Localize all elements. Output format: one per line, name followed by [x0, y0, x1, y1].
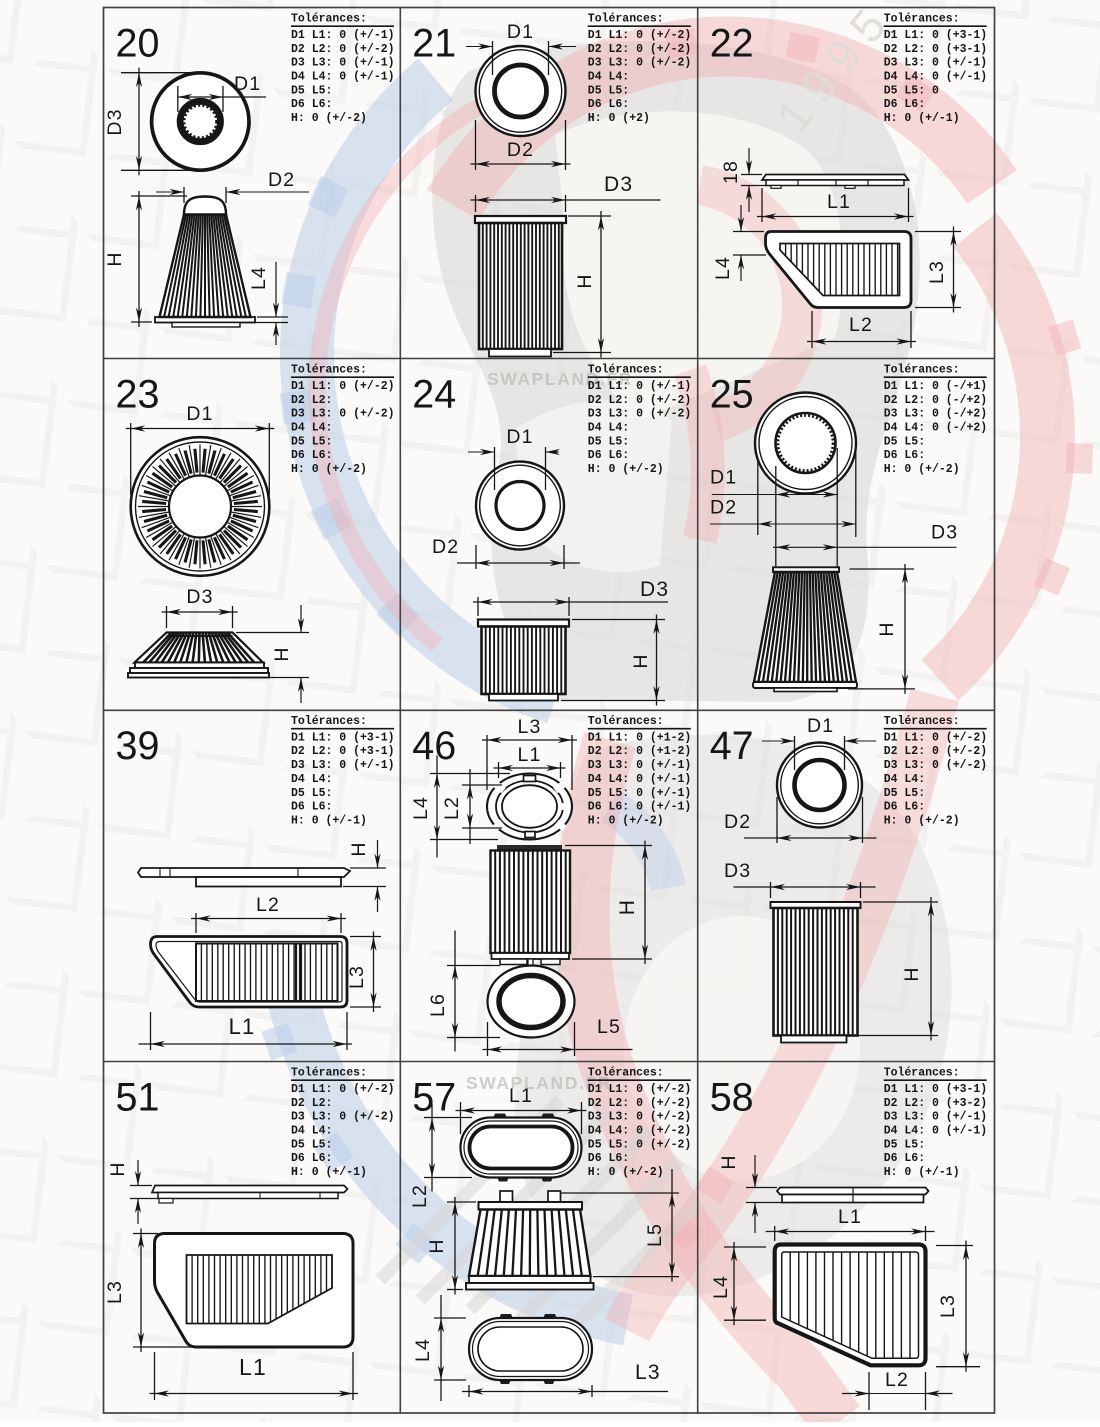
svg-text:D2 L2: 0 (+3-1): D2 L2: 0 (+3-1) [884, 43, 988, 56]
svg-text:D3 L3: 0 (-/+2): D3 L3: 0 (-/+2) [884, 408, 988, 421]
svg-text:L4: L4 [710, 1275, 732, 1299]
svg-text:L3: L3 [346, 965, 368, 989]
svg-text:Tolérances:: Tolérances: [588, 1067, 664, 1080]
svg-text:D3 L3: 0 (+/-2): D3 L3: 0 (+/-2) [588, 408, 692, 421]
svg-text:D2 L2: 0 (+3-1): D2 L2: 0 (+3-1) [291, 745, 395, 758]
svg-text:H: H [574, 273, 596, 288]
svg-text:D3: D3 [724, 860, 751, 882]
svg-text:D3 L3: 0 (+/-2): D3 L3: 0 (+/-2) [291, 408, 395, 421]
svg-text:D6 L6:: D6 L6: [884, 449, 925, 462]
svg-text:D1 L1: 0 (-/+1): D1 L1: 0 (-/+1) [884, 380, 988, 393]
svg-text:20: 20 [116, 22, 160, 66]
svg-text:L2: L2 [885, 1369, 909, 1391]
svg-text:Tolérances:: Tolérances: [291, 715, 367, 728]
svg-text:D6 L6:: D6 L6: [588, 1152, 629, 1165]
svg-text:D5 L5:: D5 L5: [291, 787, 332, 800]
svg-text:D1: D1 [507, 21, 534, 43]
svg-text:D3 L3: 0 (+/-1): D3 L3: 0 (+/-1) [588, 759, 692, 772]
svg-text:D2 L2: 0 (-/+2): D2 L2: 0 (-/+2) [884, 394, 988, 407]
svg-text:D4 L4: 0 (+/-1): D4 L4: 0 (+/-1) [884, 70, 988, 83]
svg-text:D5 L5:: D5 L5: [291, 435, 332, 448]
svg-text:D6 L6:: D6 L6: [884, 1152, 925, 1165]
svg-text:D6 L6:: D6 L6: [291, 1152, 332, 1165]
svg-text:D3 L3: 0 (+/-2): D3 L3: 0 (+/-2) [291, 1111, 395, 1124]
svg-text:L1: L1 [827, 191, 851, 213]
svg-text:D1: D1 [807, 715, 834, 737]
svg-text:D5 L5:: D5 L5: [884, 787, 925, 800]
svg-text:H: 0 (+2): H: 0 (+2) [588, 112, 650, 125]
svg-text:Tolérances:: Tolérances: [884, 13, 960, 26]
svg-text:D3 L3: 0 (+/-1): D3 L3: 0 (+/-1) [291, 759, 395, 772]
svg-text:D1 L1: 0 (+/-2): D1 L1: 0 (+/-2) [291, 380, 395, 393]
svg-text:D5 L5:: D5 L5: [588, 84, 629, 97]
svg-text:D3 L3: 0 (+/-1): D3 L3: 0 (+/-1) [884, 1111, 988, 1124]
svg-text:D1 L1: 0 (+3-1): D1 L1: 0 (+3-1) [291, 731, 395, 744]
svg-text:L3: L3 [635, 1361, 661, 1384]
svg-text:46: 46 [412, 724, 456, 768]
svg-text:L1: L1 [517, 744, 541, 766]
svg-text:D5 L5:: D5 L5: [884, 435, 925, 448]
svg-text:D5 L5:: D5 L5: [588, 435, 629, 448]
svg-text:D1 L1: 0 (+3-1): D1 L1: 0 (+3-1) [884, 1083, 988, 1096]
svg-text:H: H [271, 646, 293, 661]
svg-text:Tolérances:: Tolérances: [588, 715, 664, 728]
svg-text:39: 39 [116, 724, 160, 768]
svg-text:L1: L1 [239, 1354, 267, 1380]
svg-text:D1: D1 [506, 426, 533, 448]
svg-text:D3 L3: 0 (+/-2): D3 L3: 0 (+/-2) [588, 1111, 692, 1124]
svg-text:D4 L4:: D4 L4: [291, 1125, 332, 1138]
svg-text:L1: L1 [509, 1085, 533, 1107]
svg-text:D5 L5:: D5 L5: [884, 1138, 925, 1151]
svg-text:D4 L4: 0 (-/+2): D4 L4: 0 (-/+2) [884, 421, 988, 434]
svg-text:D2 L2: 0 (+1-2): D2 L2: 0 (+1-2) [588, 745, 692, 758]
svg-text:D2: D2 [507, 139, 534, 161]
svg-text:58: 58 [710, 1076, 754, 1120]
svg-text:18: 18 [720, 160, 742, 184]
svg-text:D2: D2 [268, 169, 295, 191]
svg-text:D2 L2: 0 (+/-2): D2 L2: 0 (+/-2) [884, 745, 988, 758]
svg-text:H: H [348, 841, 370, 856]
svg-text:D6 L6:: D6 L6: [291, 449, 332, 462]
svg-text:D5 L5: 0: D5 L5: 0 [884, 84, 939, 97]
svg-text:22: 22 [710, 22, 754, 66]
svg-text:D1 L1: 0 (+3-1): D1 L1: 0 (+3-1) [884, 29, 988, 42]
svg-text:Tolérances:: Tolérances: [884, 715, 960, 728]
svg-text:Tolérances:: Tolérances: [884, 1067, 960, 1080]
svg-text:D3 L3: 0 (+/-1): D3 L3: 0 (+/-1) [291, 57, 395, 70]
svg-text:D3: D3 [604, 173, 633, 196]
svg-text:D4 L4: 0 (+/-2): D4 L4: 0 (+/-2) [588, 1125, 692, 1138]
svg-text:H: H [718, 1154, 740, 1169]
svg-text:L2: L2 [409, 1184, 431, 1208]
svg-text:D1 L1: 0 (+/-1): D1 L1: 0 (+/-1) [588, 380, 692, 393]
svg-text:L3: L3 [517, 716, 541, 738]
svg-text:H: 0 (+/-2): H: 0 (+/-2) [884, 815, 960, 828]
svg-text:D4 L4: 0 (+/-1): D4 L4: 0 (+/-1) [884, 1125, 988, 1138]
svg-text:D2: D2 [710, 497, 737, 519]
svg-text:L3: L3 [104, 1280, 126, 1304]
svg-text:L1: L1 [838, 1206, 862, 1228]
svg-text:D2: D2 [432, 536, 459, 558]
svg-text:Tolérances:: Tolérances: [291, 13, 367, 26]
svg-text:D5 L5:: D5 L5: [291, 1138, 332, 1151]
svg-text:L2: L2 [849, 314, 873, 336]
svg-text:D4 L4:: D4 L4: [588, 70, 629, 83]
svg-text:D3: D3 [931, 522, 958, 544]
svg-text:D1 L1: 0 (+/-2): D1 L1: 0 (+/-2) [588, 29, 692, 42]
svg-text:24: 24 [412, 373, 456, 417]
svg-text:L5: L5 [597, 1016, 621, 1038]
svg-text:L4: L4 [412, 1338, 434, 1362]
svg-text:D6 L6:: D6 L6: [884, 801, 925, 814]
svg-text:D4 L4: 0 (+/-1): D4 L4: 0 (+/-1) [588, 773, 692, 786]
svg-text:D1: D1 [710, 467, 737, 489]
svg-text:H: H [104, 251, 126, 266]
svg-text:D1: D1 [186, 403, 213, 425]
svg-text:D2 L2:: D2 L2: [291, 1097, 332, 1110]
svg-text:D2 L2: 0 (+3-2): D2 L2: 0 (+3-2) [884, 1097, 988, 1110]
svg-text:57: 57 [412, 1076, 456, 1120]
svg-text:H: 0 (+/-2): H: 0 (+/-2) [884, 463, 960, 476]
svg-text:D4 L4:: D4 L4: [291, 773, 332, 786]
svg-text:D3 L3: 0 (+/-1): D3 L3: 0 (+/-1) [884, 57, 988, 70]
svg-text:L2: L2 [256, 894, 280, 916]
svg-text:H: H [901, 966, 923, 981]
svg-text:25: 25 [710, 373, 754, 417]
svg-text:L3: L3 [926, 260, 948, 284]
svg-text:D2 L2: 0 (+/-2): D2 L2: 0 (+/-2) [291, 43, 395, 56]
svg-text:D4 L4:: D4 L4: [588, 421, 629, 434]
svg-text:D5 L5:: D5 L5: [291, 84, 332, 97]
svg-text:Tolérances:: Tolérances: [291, 1067, 367, 1080]
svg-text:D3: D3 [640, 578, 669, 601]
svg-text:D1 L1: 0 (+/-2): D1 L1: 0 (+/-2) [884, 731, 988, 744]
svg-text:D4 L4:: D4 L4: [291, 421, 332, 434]
svg-text:Tolérances:: Tolérances: [588, 364, 664, 377]
svg-text:D5 L5: 0 (+/-1): D5 L5: 0 (+/-1) [588, 787, 692, 800]
svg-text:D2 L2: 0 (+/-2): D2 L2: 0 (+/-2) [588, 1097, 692, 1110]
svg-text:H: H [876, 621, 898, 636]
svg-text:D4 L4:: D4 L4: [884, 773, 925, 786]
svg-text:D6 L6:: D6 L6: [291, 98, 332, 111]
svg-text:H: 0 (+/-1): H: 0 (+/-1) [884, 1166, 960, 1179]
svg-text:L4: L4 [248, 266, 270, 290]
svg-text:47: 47 [710, 724, 754, 768]
svg-text:Tolérances:: Tolérances: [291, 364, 367, 377]
svg-text:H: 0 (+/-1): H: 0 (+/-1) [291, 815, 367, 828]
svg-text:H: 0 (+/-1): H: 0 (+/-1) [884, 112, 960, 125]
svg-text:H: 0 (+/-2): H: 0 (+/-2) [588, 1166, 664, 1179]
svg-text:H: 0 (+/-2): H: 0 (+/-2) [588, 815, 664, 828]
svg-text:H: 0 (+/-1): H: 0 (+/-1) [291, 1166, 367, 1179]
svg-text:D6 L6: 0 (+/-1): D6 L6: 0 (+/-1) [588, 801, 692, 814]
svg-text:D1 L1: 0 (+/-1): D1 L1: 0 (+/-1) [291, 29, 395, 42]
svg-text:51: 51 [116, 1076, 160, 1120]
svg-text:D5 L5: 0 (+/-2): D5 L5: 0 (+/-2) [588, 1138, 692, 1151]
svg-text:D2 L2:: D2 L2: [291, 394, 332, 407]
svg-text:D6 L6:: D6 L6: [884, 98, 925, 111]
svg-text:H: 0 (+/-2): H: 0 (+/-2) [291, 463, 367, 476]
svg-text:L4: L4 [712, 256, 734, 280]
svg-text:Tolérances:: Tolérances: [588, 13, 664, 26]
svg-text:D6 L6:: D6 L6: [291, 801, 332, 814]
svg-text:L2: L2 [441, 796, 463, 820]
svg-text:D6 L6:: D6 L6: [588, 98, 629, 111]
svg-text:D2: D2 [724, 811, 751, 833]
svg-text:D3: D3 [104, 108, 126, 135]
svg-text:D2 L2: 0 (+/-2): D2 L2: 0 (+/-2) [588, 394, 692, 407]
svg-text:H: 0 (+/-2): H: 0 (+/-2) [588, 463, 664, 476]
svg-text:D3 L3: 0 (+/-2): D3 L3: 0 (+/-2) [588, 57, 692, 70]
svg-text:D1 L1: 0 (+/-2): D1 L1: 0 (+/-2) [588, 1083, 692, 1096]
svg-text:H: H [630, 653, 652, 668]
svg-text:H: H [616, 899, 639, 915]
svg-text:H: 0 (+/-2): H: 0 (+/-2) [291, 112, 367, 125]
svg-text:D4 L4: 0 (+/-1): D4 L4: 0 (+/-1) [291, 70, 395, 83]
svg-text:D1 L1: 0 (+1-2): D1 L1: 0 (+1-2) [588, 731, 692, 744]
svg-text:L5: L5 [644, 1223, 666, 1247]
svg-text:D1: D1 [234, 73, 261, 95]
svg-text:23: 23 [116, 373, 160, 417]
svg-text:D3: D3 [186, 586, 213, 608]
svg-text:L6: L6 [427, 993, 449, 1017]
svg-text:D1 L1: 0 (+/-2): D1 L1: 0 (+/-2) [291, 1083, 395, 1096]
svg-text:21: 21 [412, 22, 456, 66]
svg-text:D6 L6:: D6 L6: [588, 449, 629, 462]
svg-text:H: H [426, 1238, 448, 1253]
svg-text:L3: L3 [937, 1294, 959, 1318]
svg-text:D2 L2: 0 (+/-2): D2 L2: 0 (+/-2) [588, 43, 692, 56]
svg-text:Tolérances:: Tolérances: [884, 364, 960, 377]
svg-text:L4: L4 [410, 796, 432, 820]
svg-text:H: H [107, 1161, 129, 1176]
svg-text:L1: L1 [229, 1014, 256, 1039]
svg-text:D3 L3: 0 (+/-2): D3 L3: 0 (+/-2) [884, 759, 988, 772]
